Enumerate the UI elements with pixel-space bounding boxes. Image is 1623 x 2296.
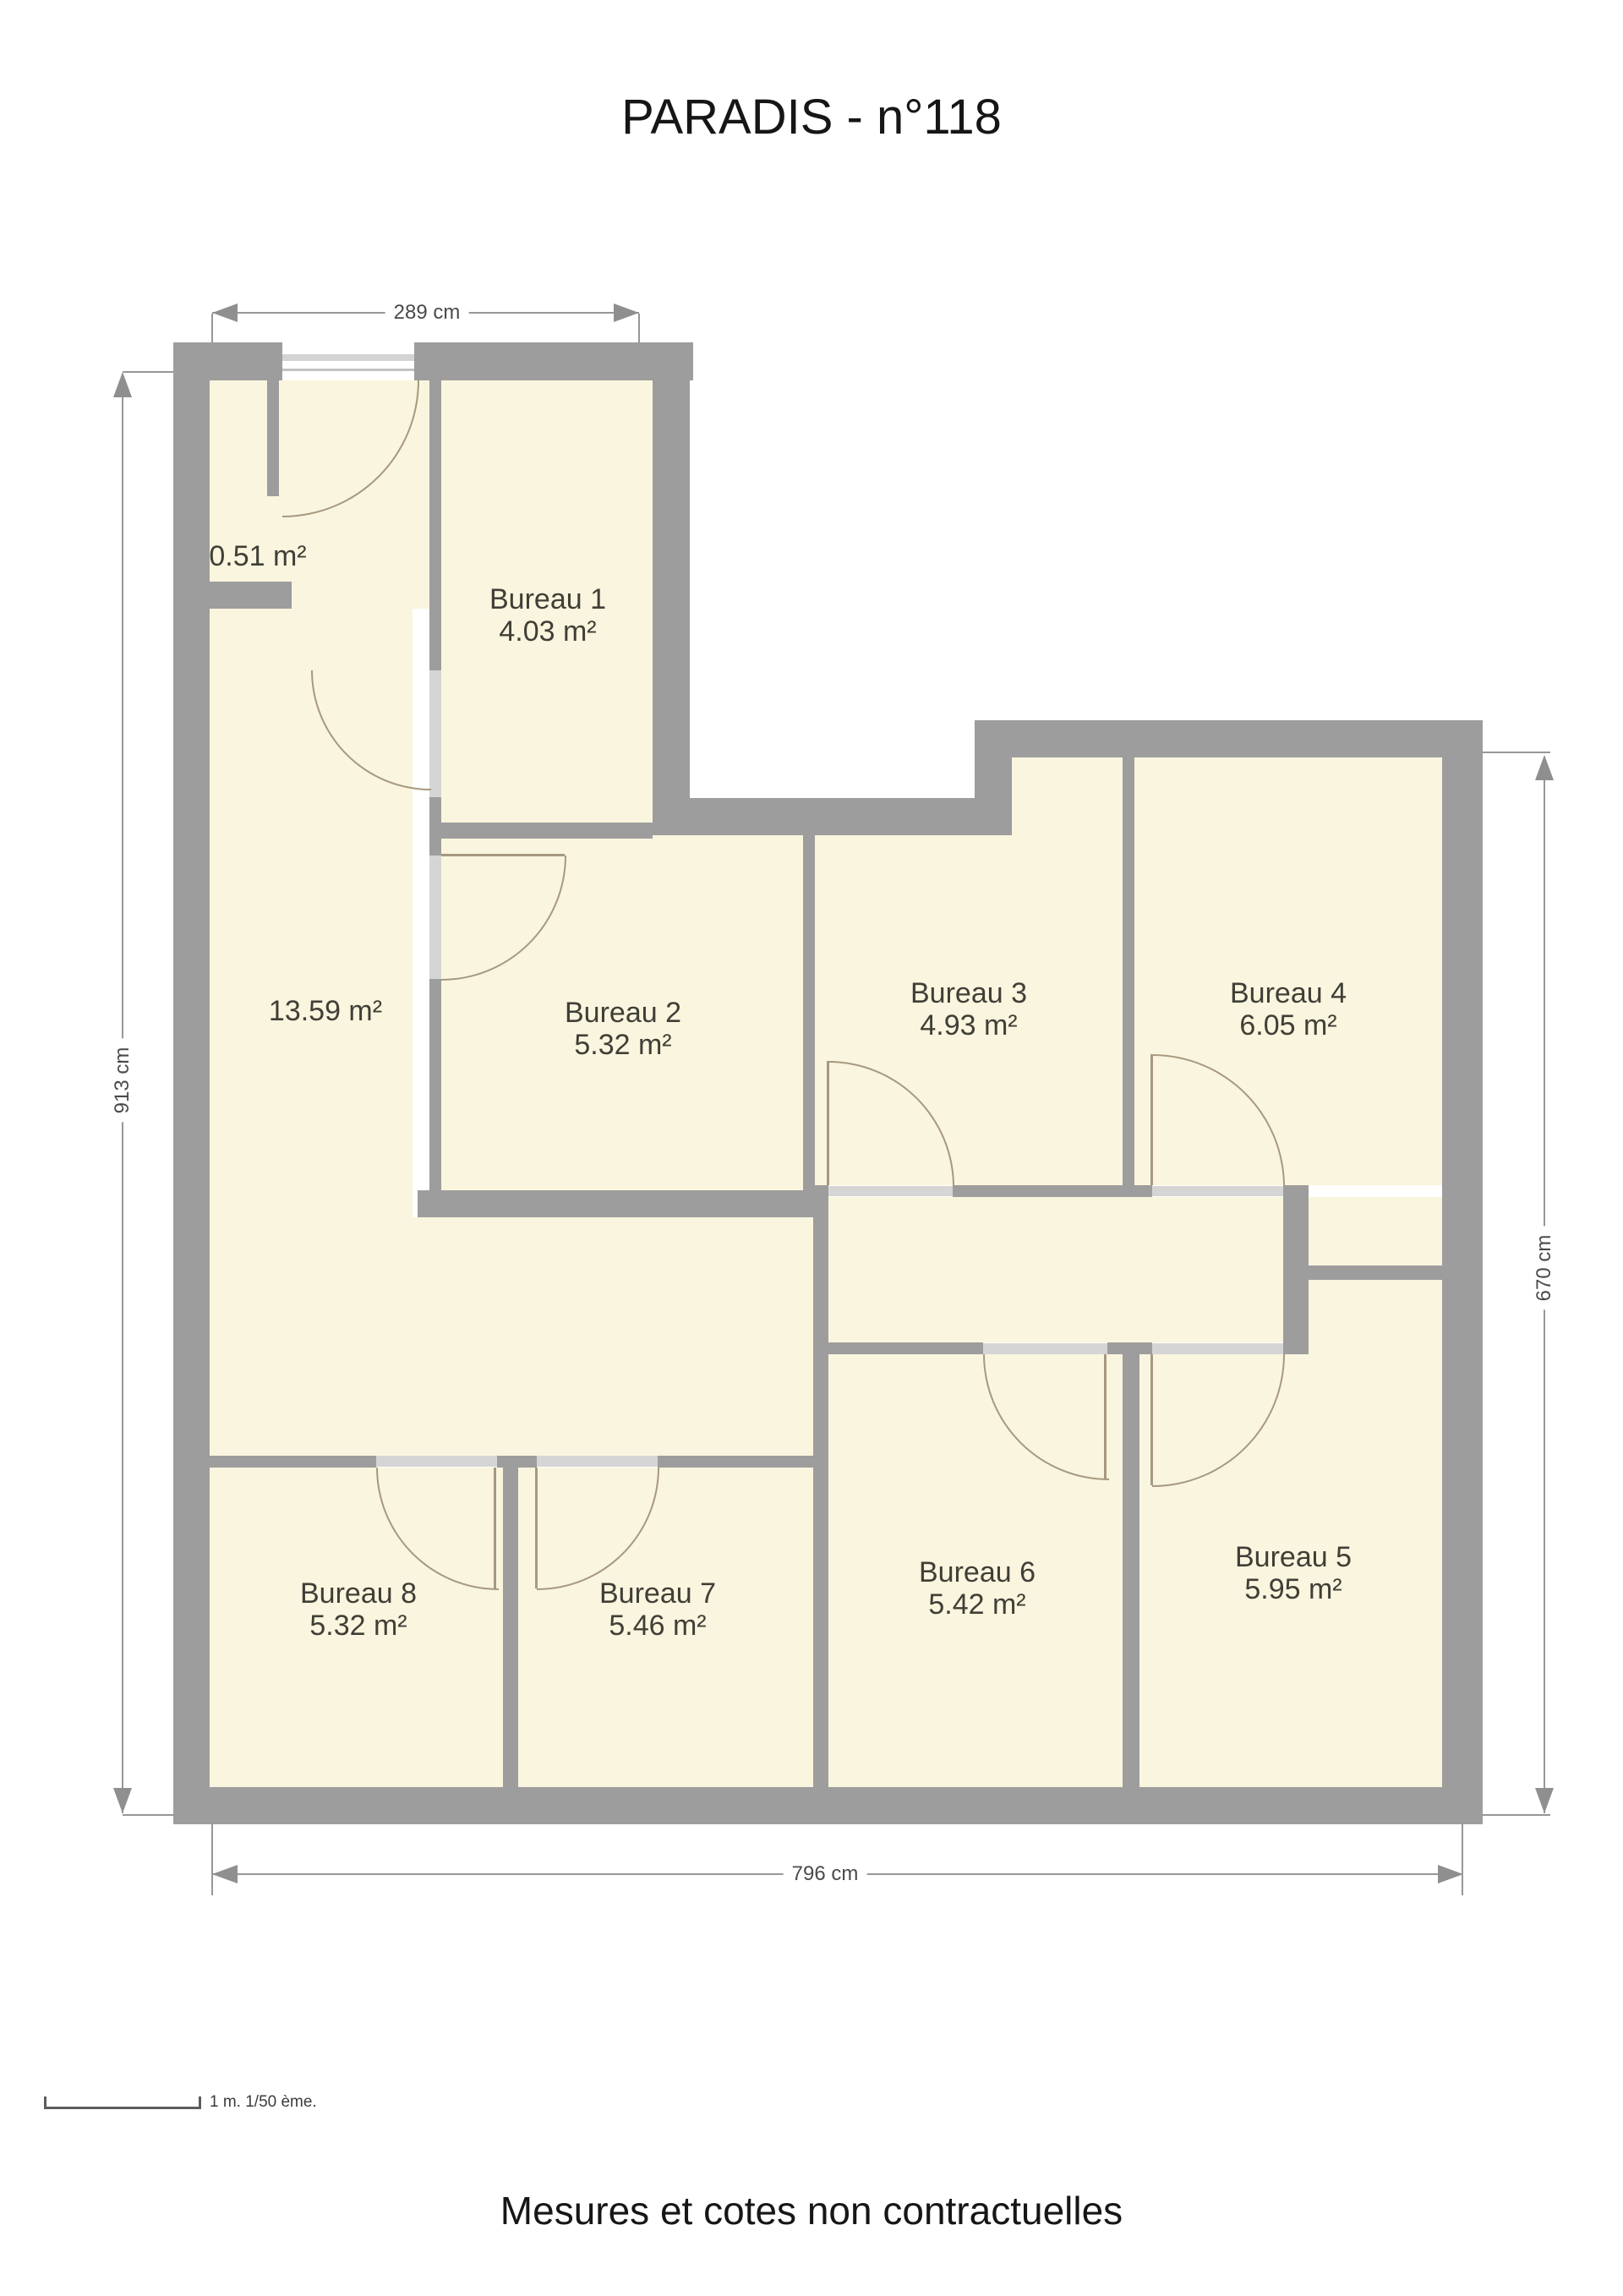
dimension-left-arrow-top xyxy=(113,372,132,397)
dimension-left-tick-bottom xyxy=(123,1814,173,1816)
room-area: 5.42 m² xyxy=(919,1588,1036,1621)
room-area: 5.32 m² xyxy=(565,1029,681,1061)
room-label-closet: 0.51 m² xyxy=(209,540,306,572)
room-area: 6.05 m² xyxy=(1230,1009,1347,1041)
room-floor-corridor-east xyxy=(828,1197,1283,1342)
wall-bureau7-bureau8-divider xyxy=(503,1468,518,1787)
room-name: Bureau 4 xyxy=(1230,977,1347,1009)
room-area: 13.59 m² xyxy=(269,995,382,1027)
floor-plan-page: PARADIS - n°118 xyxy=(0,0,1623,2296)
footer-disclaimer: Mesures et cotes non contractuelles xyxy=(0,2188,1623,2233)
room-label-bureau7: Bureau 7 5.46 m² xyxy=(599,1577,716,1642)
dimension-bottom-label: 796 cm xyxy=(784,1861,867,1888)
dimension-left-tick-top xyxy=(123,371,173,373)
wall-outer-top xyxy=(173,342,693,380)
wall-bureau3-bureau4-divider xyxy=(1123,720,1134,1185)
door-sill-bureau2 xyxy=(429,856,441,979)
room-name: Bureau 6 xyxy=(919,1556,1036,1588)
wall-closet-bottom xyxy=(173,582,292,609)
wall-bureau6-bureau7-divider xyxy=(813,1185,828,1787)
dimension-bottom-extension-right xyxy=(1462,1824,1463,1895)
door-leaf-bureau7 xyxy=(535,1468,538,1588)
dimension-top-extension-left xyxy=(211,314,213,342)
door-sill-bureau4 xyxy=(1152,1186,1283,1196)
room-area: 5.46 m² xyxy=(599,1610,716,1642)
room-label-bureau1: Bureau 1 4.03 m² xyxy=(489,583,606,648)
scale-bar-tick-left xyxy=(44,2096,46,2109)
door-sill-bureau7 xyxy=(537,1456,658,1467)
wall-bureau1-left xyxy=(429,380,441,672)
wall-corridor-bottom-east-a xyxy=(828,1342,983,1354)
dimension-top-arrow-right xyxy=(614,303,639,322)
wall-corridor-bottom-west-pier xyxy=(497,1456,537,1468)
wall-bureau2-left-lower xyxy=(429,979,441,1190)
scale-bar-tick-right xyxy=(199,2096,201,2109)
dimension-bottom-extension-left xyxy=(211,1824,213,1895)
dimension-right-tick-top xyxy=(1483,752,1550,753)
dimension-right-label: 670 cm xyxy=(1531,1227,1558,1310)
wall-wing-right xyxy=(653,342,690,835)
wall-step-horizontal xyxy=(653,798,1012,835)
wall-bureau2-right xyxy=(803,835,815,1190)
door-sill-bureau5 xyxy=(1152,1343,1283,1354)
room-name: Bureau 1 xyxy=(489,583,606,615)
wall-closet-right xyxy=(267,380,279,496)
wall-corridor-top-east-b xyxy=(953,1185,1152,1197)
wall-bureau4-bureau5 xyxy=(1309,1266,1442,1280)
door-sill-bureau3 xyxy=(828,1186,953,1196)
door-sill-bureau1 xyxy=(429,670,441,797)
room-area: 0.51 m² xyxy=(209,540,306,572)
door-leaf-bureau5 xyxy=(1150,1354,1153,1485)
room-label-hall: 13.59 m² xyxy=(269,995,382,1027)
wall-outer-bottom xyxy=(173,1787,1483,1824)
room-area: 5.32 m² xyxy=(300,1610,417,1642)
scale-note: 1 m. 1/50 ème. xyxy=(210,2093,317,2112)
wall-corridor-bottom-east-pier xyxy=(1107,1342,1152,1354)
dimension-right-tick-bottom xyxy=(1483,1814,1550,1816)
door-leaf-bureau4 xyxy=(1150,1054,1153,1185)
room-floor-bureau4-strip xyxy=(1309,1197,1442,1266)
door-leaf-bureau8 xyxy=(494,1468,496,1588)
entrance-opening xyxy=(282,342,414,380)
door-leaf-bureau2 xyxy=(441,854,565,856)
wall-bureau2-bottom xyxy=(418,1190,814,1217)
room-area: 4.03 m² xyxy=(489,615,606,648)
door-sill-bureau6 xyxy=(983,1343,1107,1354)
entrance-door-panel xyxy=(282,354,414,361)
door-leaf-bureau3 xyxy=(827,1061,829,1185)
room-label-bureau3: Bureau 3 4.93 m² xyxy=(910,977,1027,1041)
room-name: Bureau 2 xyxy=(565,997,681,1029)
room-label-bureau4: Bureau 4 6.05 m² xyxy=(1230,977,1347,1041)
room-name: Bureau 8 xyxy=(300,1577,417,1610)
room-label-bureau2: Bureau 2 5.32 m² xyxy=(565,997,681,1061)
room-label-bureau5: Bureau 5 5.95 m² xyxy=(1235,1541,1352,1605)
wall-bureau5-bureau6-divider xyxy=(1123,1354,1139,1787)
room-label-bureau8: Bureau 8 5.32 m² xyxy=(300,1577,417,1642)
room-name: Bureau 3 xyxy=(910,977,1027,1009)
wall-corridor-bottom-west-a xyxy=(208,1456,376,1468)
page-title: PARADIS - n°118 xyxy=(0,89,1623,145)
dimension-top-label: 289 cm xyxy=(385,299,469,326)
wall-bureau1-bottom xyxy=(429,823,653,839)
wall-vestibule-right xyxy=(1283,1185,1309,1354)
room-name: Bureau 5 xyxy=(1235,1541,1352,1573)
room-name: Bureau 7 xyxy=(599,1577,716,1610)
wall-outer-left xyxy=(173,342,210,1824)
dimension-top-extension-right xyxy=(638,314,640,342)
room-floor-bureau3-notch xyxy=(1012,757,1123,835)
dimension-left-arrow-bottom xyxy=(113,1788,132,1813)
scale-bar-line xyxy=(45,2107,201,2109)
room-area: 5.95 m² xyxy=(1235,1573,1352,1605)
dimension-bottom-arrow-right xyxy=(1438,1865,1463,1883)
dimension-right-arrow-bottom xyxy=(1535,1788,1554,1813)
entrance-door-frame-line xyxy=(282,369,414,371)
dimension-right-arrow-top xyxy=(1535,755,1554,780)
dimension-left-label: 913 cm xyxy=(109,1039,136,1123)
dimension-bottom-arrow-left xyxy=(212,1865,238,1883)
dimension-top-arrow-left xyxy=(212,303,238,322)
door-sill-bureau8 xyxy=(376,1456,497,1467)
room-floor-bureau5-strip xyxy=(1309,1280,1442,1354)
wall-outer-right xyxy=(1442,720,1483,1824)
door-leaf-bureau6 xyxy=(1104,1354,1107,1479)
room-label-bureau6: Bureau 6 5.42 m² xyxy=(919,1556,1036,1621)
wall-corridor-bottom-west-b xyxy=(658,1456,813,1468)
wall-outer-top-right xyxy=(975,720,1483,757)
room-area: 4.93 m² xyxy=(910,1009,1027,1041)
room-floor-corridor-west xyxy=(210,1217,813,1456)
